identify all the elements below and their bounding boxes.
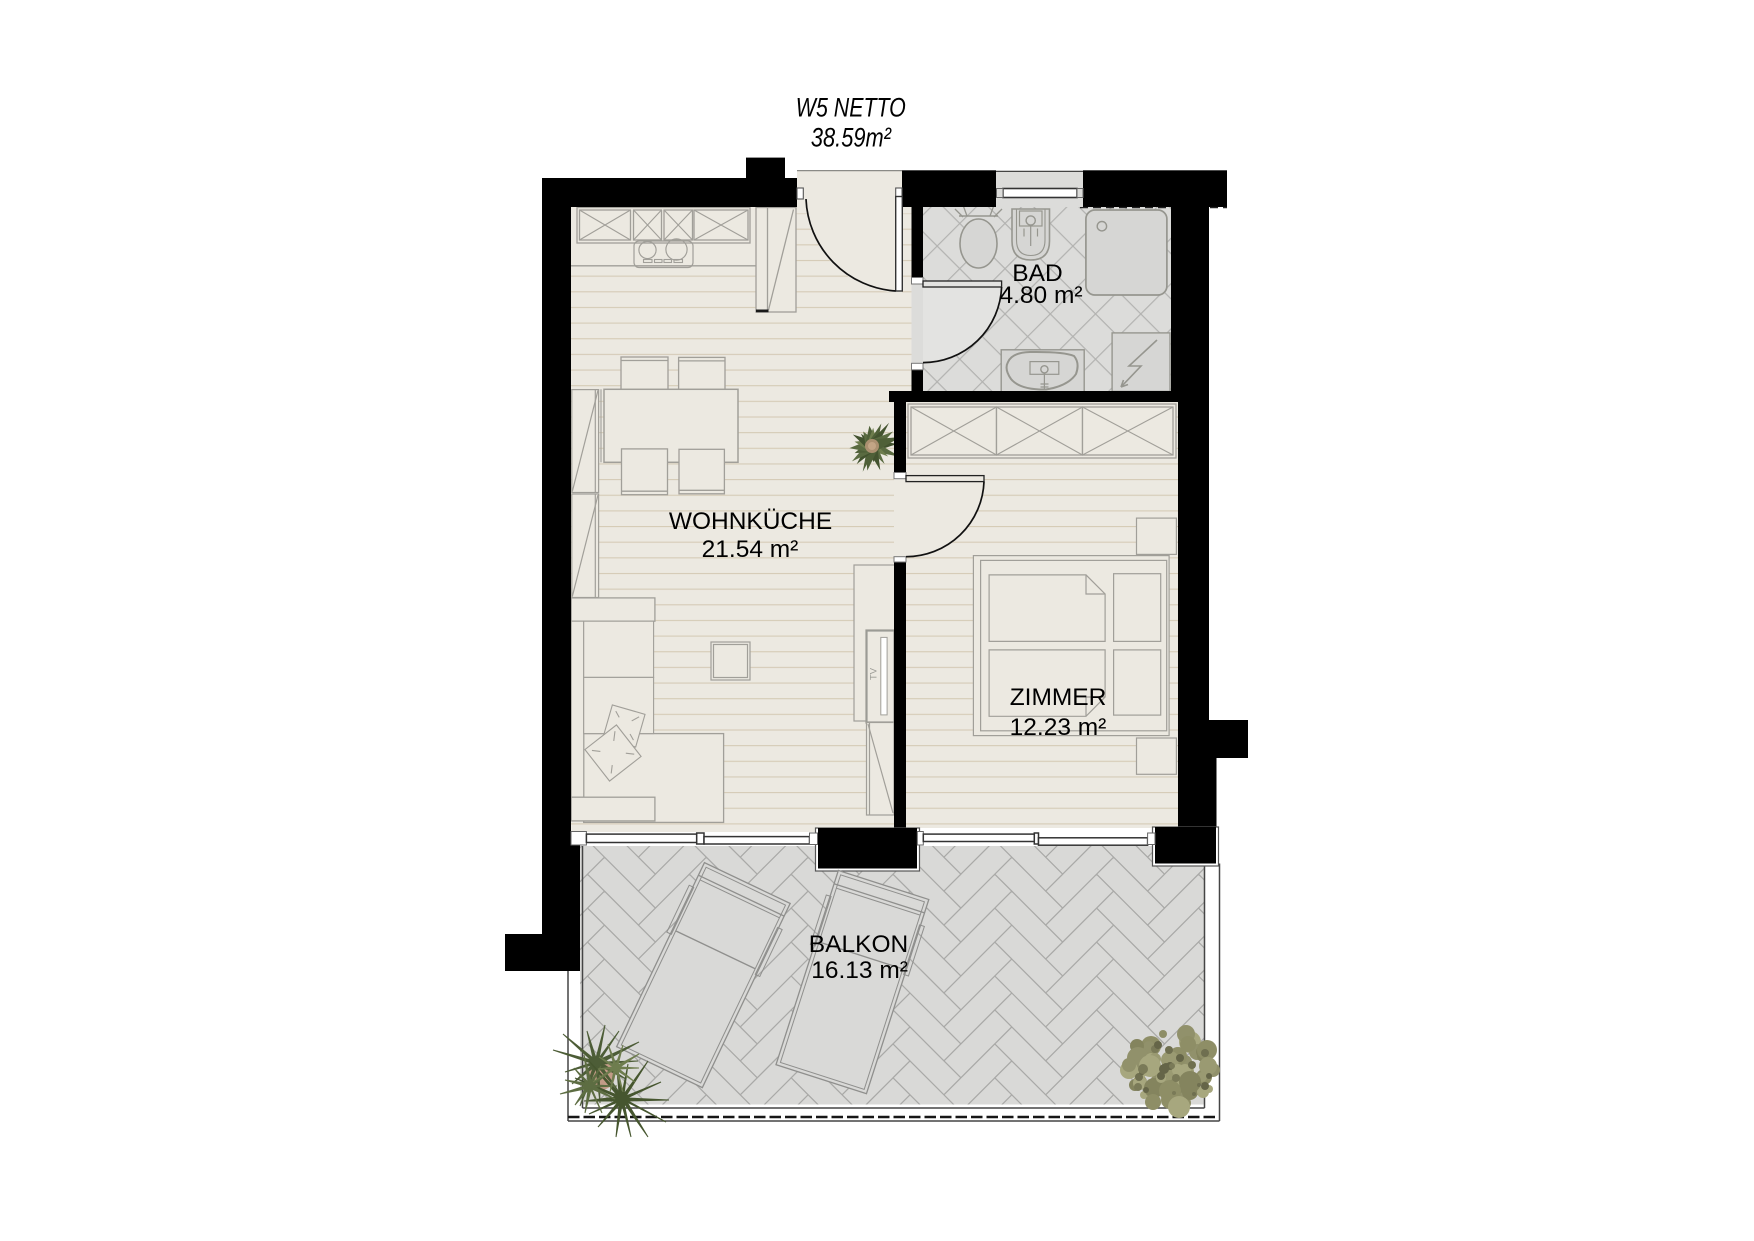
svg-text:W5 NETTO: W5 NETTO <box>796 93 906 123</box>
svg-text:BALKON: BALKON <box>809 931 908 958</box>
svg-text:4.80 m²: 4.80 m² <box>999 282 1082 309</box>
svg-text:ZIMMER: ZIMMER <box>1010 684 1107 711</box>
svg-text:21.54 m²: 21.54 m² <box>702 536 799 563</box>
svg-text:38.59m²: 38.59m² <box>811 123 892 153</box>
svg-text:12.23 m²: 12.23 m² <box>1010 714 1107 741</box>
svg-text:WOHNKÜCHE: WOHNKÜCHE <box>669 508 832 535</box>
svg-text:16.13 m²: 16.13 m² <box>811 957 908 984</box>
svg-text:TV: TV <box>869 667 880 680</box>
